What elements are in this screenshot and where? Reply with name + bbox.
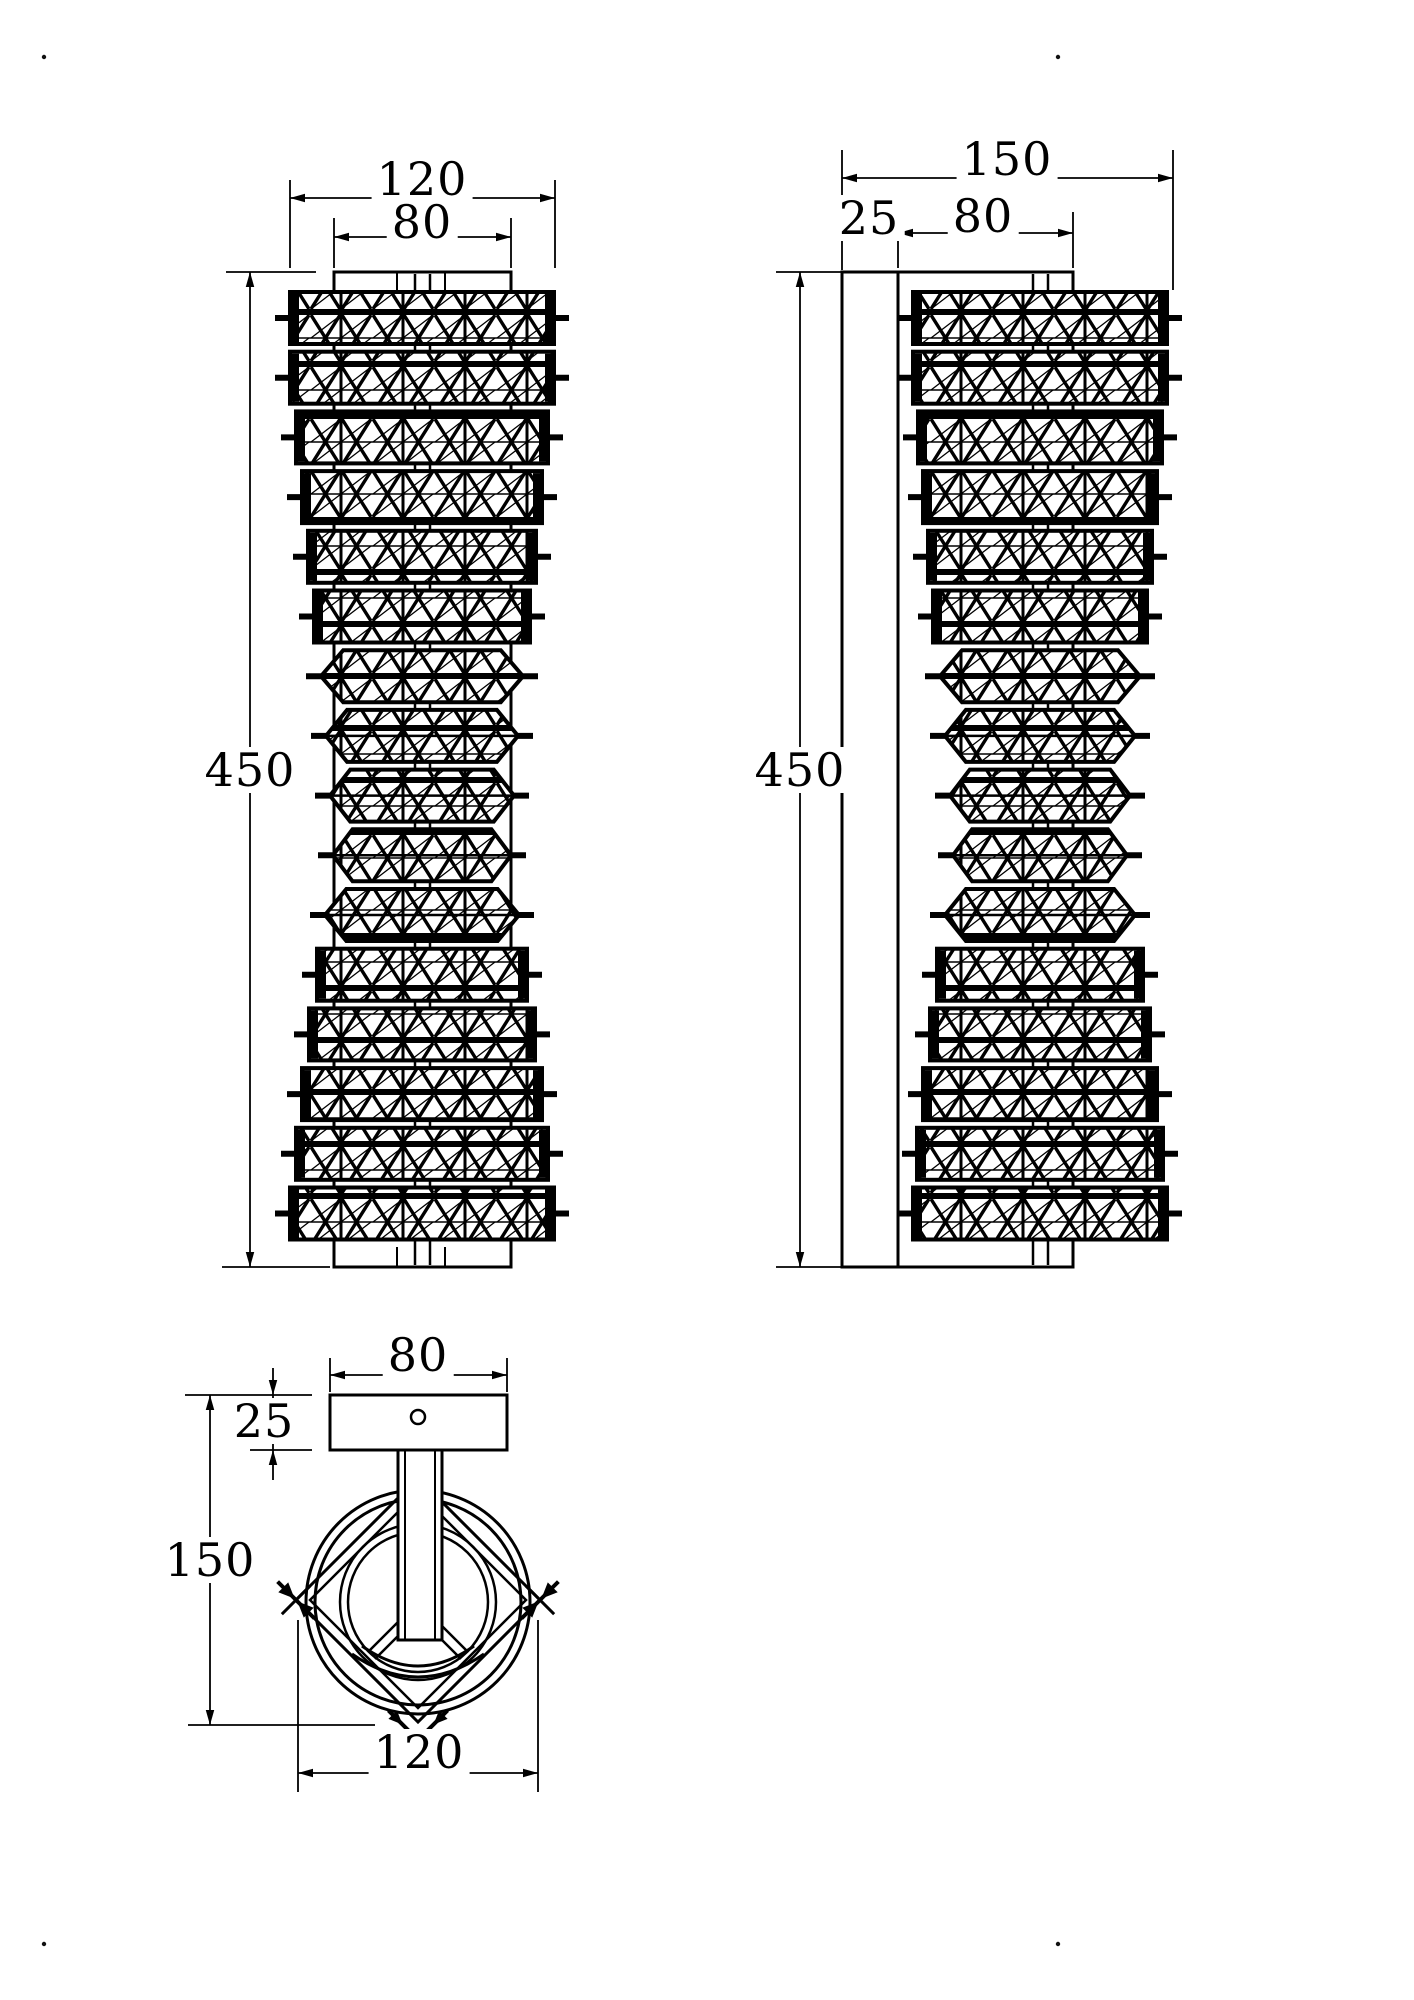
bottom-dim-80-label: 80 bbox=[383, 1332, 454, 1378]
front-view-drawing bbox=[222, 180, 569, 1267]
front-dim-450-label: 450 bbox=[200, 747, 301, 793]
side-dim-80-label: 80 bbox=[948, 193, 1019, 239]
side-dim-25-label: 25 bbox=[834, 195, 905, 241]
side-dim-450-label: 450 bbox=[750, 747, 851, 793]
bottom-dim-120-label: 120 bbox=[369, 1729, 470, 1775]
screw-hole bbox=[411, 1410, 425, 1424]
bottom-dim-150-label: 150 bbox=[160, 1537, 261, 1583]
technical-drawing-page: 120 80 450 150 25 80 450 80 25 150 120 bbox=[0, 0, 1414, 2000]
front-dim-80-label: 80 bbox=[387, 199, 458, 245]
drawing-canvas bbox=[0, 0, 1414, 2000]
side-view-drawing bbox=[776, 150, 1182, 1267]
side-dim-150-label: 150 bbox=[957, 136, 1058, 182]
bottom-dim-25-label: 25 bbox=[229, 1398, 300, 1444]
